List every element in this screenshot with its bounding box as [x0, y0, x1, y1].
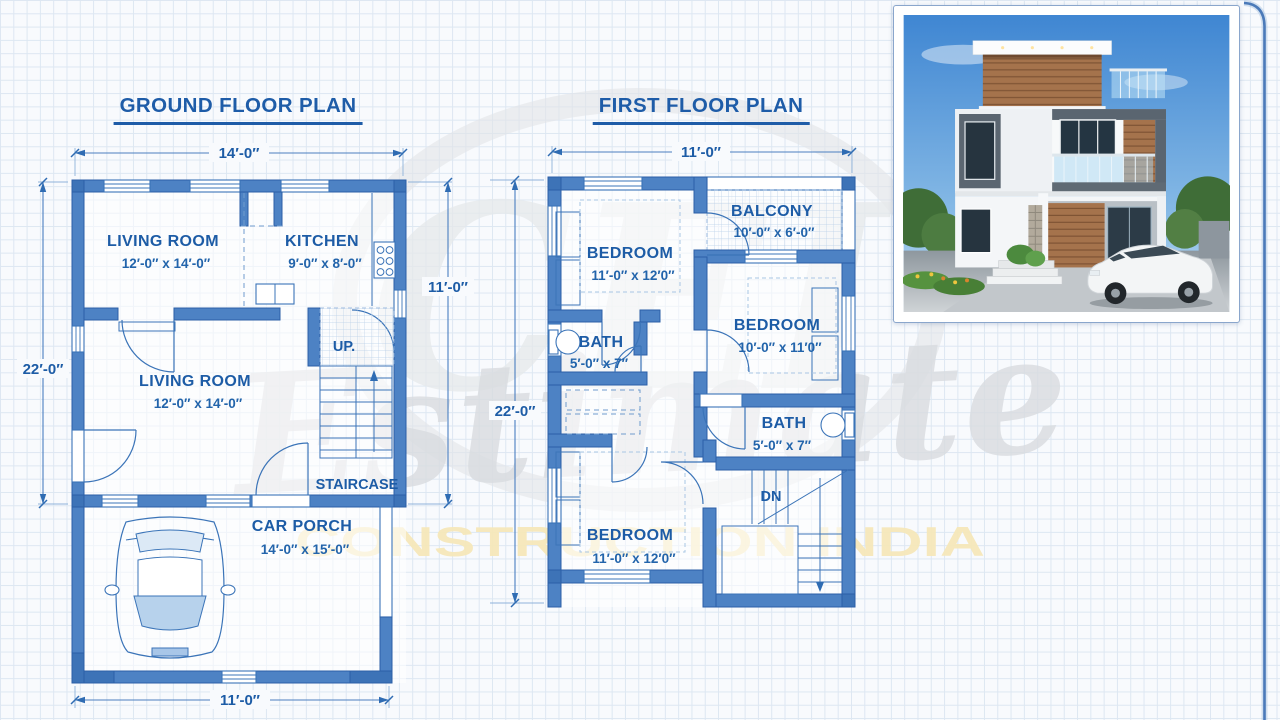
sheet-border-halo	[1244, 3, 1265, 720]
room-label-staircase: STAIRCASE	[316, 477, 399, 493]
first-floor-title: FIRST FLOOR PLAN	[593, 94, 810, 125]
bath-sink-icon	[549, 330, 580, 354]
window	[281, 180, 329, 192]
window	[745, 250, 797, 263]
room-label-balcony: BALCONY	[731, 203, 813, 220]
ground-floor-plan: LIVING ROOM 12′-0″ x 14′-0″ KITCHEN 9′-0…	[17, 143, 474, 709]
room-label-bedroom-1: BEDROOM	[587, 245, 673, 262]
room-size-bath-2: 5′-0″ x 7″	[753, 438, 812, 453]
window	[104, 180, 150, 192]
svg-text:22′-0″: 22′-0″	[23, 361, 64, 378]
room-size-bath-1: 5′-0″ x 7″	[570, 356, 629, 371]
blueprint-sheet: CEI Estimate CONSTRUCTION INDIA	[0, 0, 1280, 720]
room-label-living-room-2: LIVING ROOM	[139, 373, 251, 390]
room-label-bath-2: BATH	[762, 415, 807, 432]
svg-text:22′-0″: 22′-0″	[495, 403, 536, 420]
kitchen-sink-icon	[256, 284, 294, 304]
dimension-ground-top: 14′-0″	[71, 143, 407, 176]
label-dn: DN	[761, 489, 782, 505]
bath-sink-icon	[821, 413, 854, 437]
dimension-ground-left: 22′-0″	[17, 178, 69, 508]
room-size-living-room-2: 12′-0″ x 14′-0″	[154, 396, 243, 411]
window	[206, 495, 250, 507]
room-label-bedroom-2: BEDROOM	[734, 317, 820, 334]
window	[548, 206, 561, 256]
window	[190, 180, 240, 192]
window	[842, 296, 855, 351]
room-size-bedroom-1: 11′-0″ x 12′0″	[591, 268, 675, 283]
window	[394, 290, 406, 318]
window	[584, 177, 642, 190]
window	[102, 495, 138, 507]
door-opening	[252, 495, 310, 507]
room-label-bath-1: BATH	[579, 334, 624, 351]
room-label-living-room-1: LIVING ROOM	[107, 233, 219, 250]
window	[222, 671, 256, 683]
room-size-living-room-1: 12′-0″ x 14′-0″	[122, 256, 211, 271]
sheet-border	[1244, 3, 1265, 720]
room-label-bedroom-3: BEDROOM	[587, 527, 673, 544]
room-label-car-porch: CAR PORCH	[252, 518, 353, 535]
svg-text:11′-0″: 11′-0″	[428, 279, 468, 296]
window	[548, 468, 561, 523]
room-size-kitchen: 9′-0″ x 8′-0″	[288, 256, 362, 271]
door-opening	[72, 430, 84, 482]
window	[72, 326, 84, 352]
room-size-bedroom-3: 11′-0″ x 12′0″	[592, 551, 676, 566]
room-label-kitchen: KITCHEN	[285, 233, 359, 250]
ground-floor-title: GROUND FLOOR PLAN	[114, 94, 363, 125]
room-size-bedroom-2: 10′-0″ x 11′0″	[738, 340, 822, 355]
compound-wall	[1199, 221, 1230, 259]
svg-text:11′-0″: 11′-0″	[220, 692, 260, 709]
house-render-illustration	[903, 15, 1230, 312]
room-size-car-porch: 14′-0″ x 15′-0″	[261, 542, 350, 557]
room-size-balcony: 10′-0″ x 6′-0″	[734, 225, 815, 240]
stove-icon	[374, 242, 395, 278]
svg-text:14′-0″: 14′-0″	[219, 145, 260, 162]
window	[584, 570, 650, 583]
svg-text:11′-0″: 11′-0″	[681, 144, 721, 161]
house-render-photo	[893, 5, 1240, 323]
dimension-ground-bottom: 11′-0″	[71, 686, 393, 709]
label-up: UP.	[333, 339, 355, 355]
